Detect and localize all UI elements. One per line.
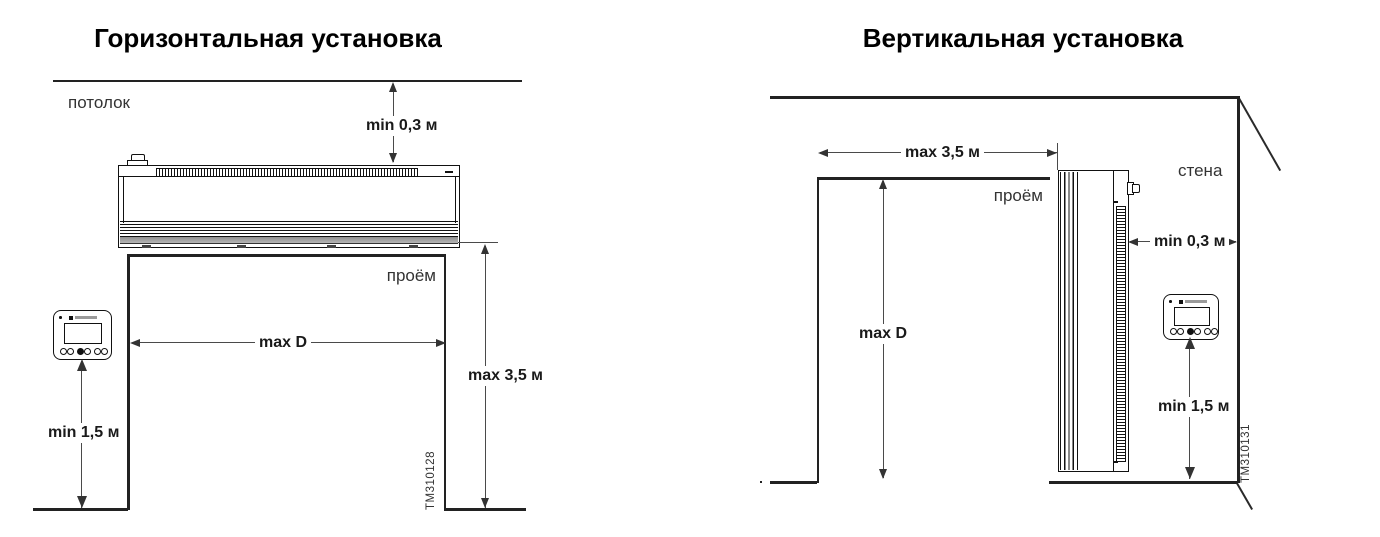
doorway-lintel-line (817, 177, 1050, 180)
floor-line-left (770, 481, 817, 484)
intake-grille-hatch (1116, 206, 1126, 462)
dim-controller-height-label: min 1,5 м (44, 423, 123, 443)
air-curtain-horizontal (118, 165, 460, 248)
discharge-louvers (1060, 172, 1080, 470)
dim-ceiling-gap-label: min 0,3 м (362, 116, 441, 136)
arrow-up-icon (77, 359, 87, 371)
figure-id-right: TM310131 (1240, 426, 1252, 483)
led-dot-icon (1169, 300, 1172, 303)
dim-opening-height-label: max D (855, 324, 911, 344)
brand-logo-icon (69, 315, 97, 320)
brand-logo-icon (1179, 299, 1207, 304)
arrow-down-icon (389, 153, 397, 163)
extension-line (1057, 143, 1058, 170)
remote-screen (1174, 307, 1210, 326)
cover-latch (445, 171, 453, 173)
discharge-louvers (120, 221, 458, 237)
floor-line-left (33, 508, 128, 511)
unit-bottom-band (120, 237, 458, 244)
unit-foot (142, 245, 151, 248)
arrow-up-icon (879, 179, 887, 189)
vertical-installation-title: Вертикальная установка (823, 24, 1223, 53)
unit-edge-right (455, 177, 456, 223)
arrow-down-icon (1185, 467, 1195, 479)
figure-id-left: TM310128 (425, 453, 437, 510)
arrow-up-icon (1185, 337, 1195, 349)
floor-line-right (1049, 481, 1238, 484)
unit-foot (237, 245, 246, 248)
extension-line (458, 242, 498, 243)
cable-gland-icon (1132, 184, 1140, 193)
arrow-left-icon (1128, 238, 1138, 246)
dim-wall-gap-label: min 0,3 м (1150, 232, 1229, 252)
arrow-down-icon (879, 469, 887, 479)
wall-break-diagonal (1239, 98, 1281, 171)
horizontal-installation-title: Горизонтальная установка (58, 24, 478, 53)
dim-opening-width-label: max 3,5 м (901, 143, 984, 163)
floor-line-right (444, 508, 526, 511)
dim-opening-height-label: max 3,5 м (464, 366, 547, 386)
opening-label: проём (368, 267, 436, 284)
wall-top-line (770, 96, 1240, 99)
dim-opening-width-label: max D (255, 333, 311, 353)
floor-break-diagonal (1237, 483, 1253, 510)
doorway-wall-left (817, 177, 820, 483)
intake-grille-hatch (156, 168, 418, 177)
arrow-down-icon (77, 496, 87, 508)
unit-foot (409, 245, 418, 248)
arrow-left-icon (818, 149, 828, 157)
arrow-right-icon (1047, 149, 1057, 157)
unit-foot (327, 245, 336, 248)
wall-label: стена (1178, 162, 1222, 179)
remote-buttons (60, 348, 108, 355)
cover-latch (1114, 461, 1118, 463)
arrow-up-icon (481, 244, 489, 254)
installation-diagrams: Горизонтальная установка потолок min 0,3… (0, 0, 1380, 537)
led-dot-icon (59, 316, 62, 319)
air-curtain-vertical (1058, 170, 1129, 472)
floor-line-end-dot (760, 481, 762, 483)
doorway-wall-right (444, 254, 447, 510)
doorway-lintel-line (128, 254, 446, 257)
dim-controller-height-label: min 1,5 м (1154, 397, 1233, 417)
doorway-wall-left (127, 254, 130, 510)
arrow-down-icon (481, 498, 489, 508)
opening-label: проём (983, 187, 1043, 204)
remote-controller (1163, 294, 1219, 340)
unit-edge-left (123, 177, 124, 223)
remote-screen (64, 323, 102, 344)
remote-buttons (1170, 328, 1218, 335)
arrow-left-icon (130, 339, 140, 347)
ceiling-line (53, 80, 522, 82)
ceiling-label: потолок (68, 94, 130, 111)
arrow-right-icon (436, 339, 446, 347)
remote-controller (53, 310, 112, 360)
cover-latch (1114, 201, 1118, 203)
arrow-up-icon (389, 82, 397, 92)
